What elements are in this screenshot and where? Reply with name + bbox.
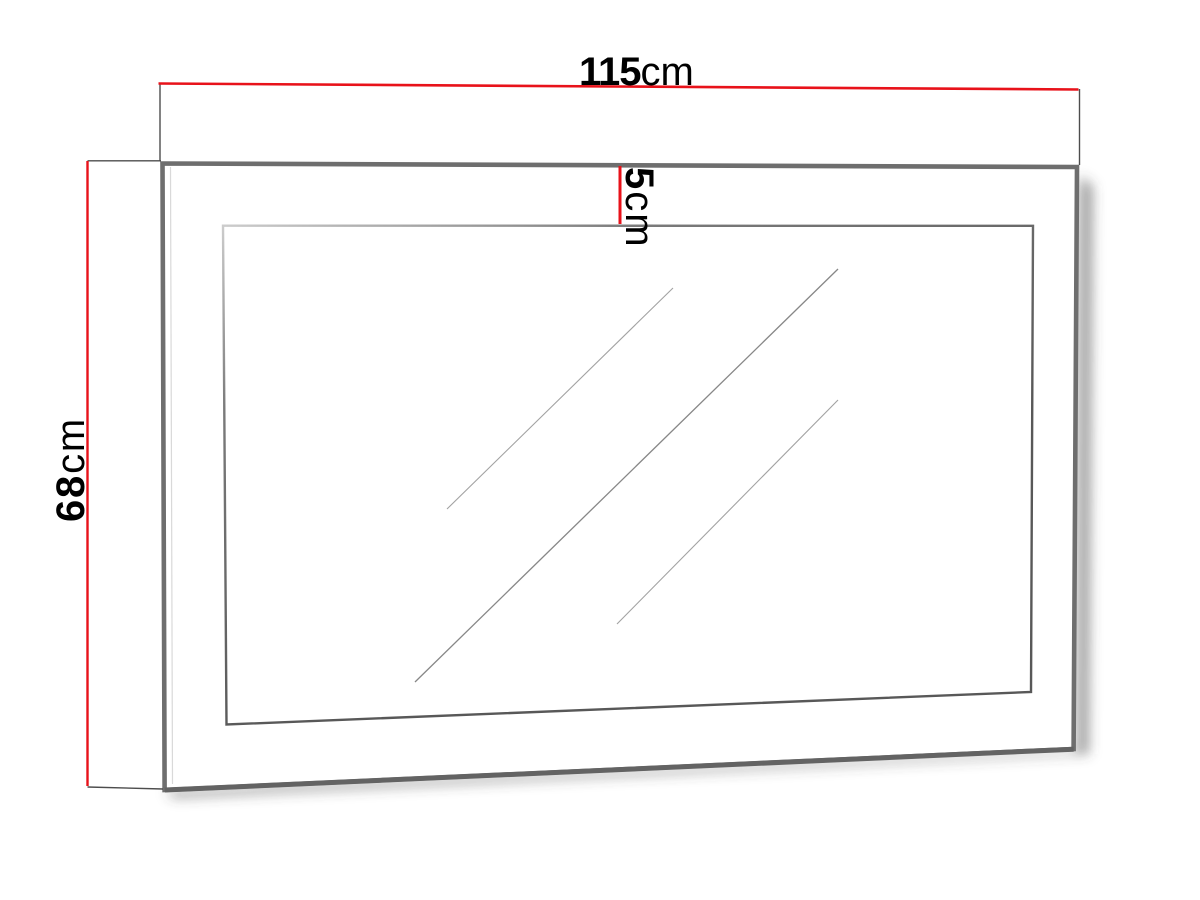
svg-text:5cm: 5cm (617, 167, 661, 249)
svg-text:115cm: 115cm (579, 50, 694, 94)
svg-text:68cm: 68cm (49, 417, 93, 522)
